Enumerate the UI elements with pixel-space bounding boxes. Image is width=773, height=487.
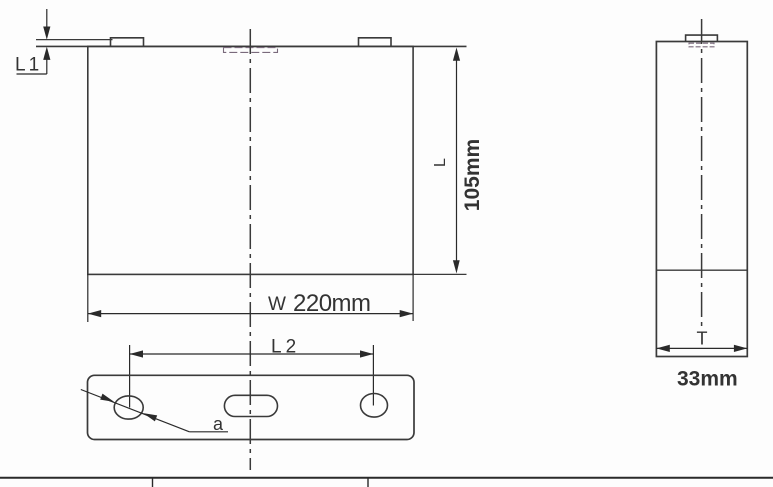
svg-text:L1: L1: [15, 55, 42, 76]
svg-text:33mm: 33mm: [677, 368, 738, 391]
svg-text:L2: L2: [271, 337, 300, 358]
svg-text:220mm: 220mm: [293, 290, 371, 317]
svg-text:L: L: [432, 158, 449, 167]
svg-text:T: T: [697, 329, 708, 349]
svg-text:a: a: [213, 414, 224, 434]
svg-text:105mm: 105mm: [461, 139, 484, 211]
svg-text:W: W: [268, 294, 286, 315]
